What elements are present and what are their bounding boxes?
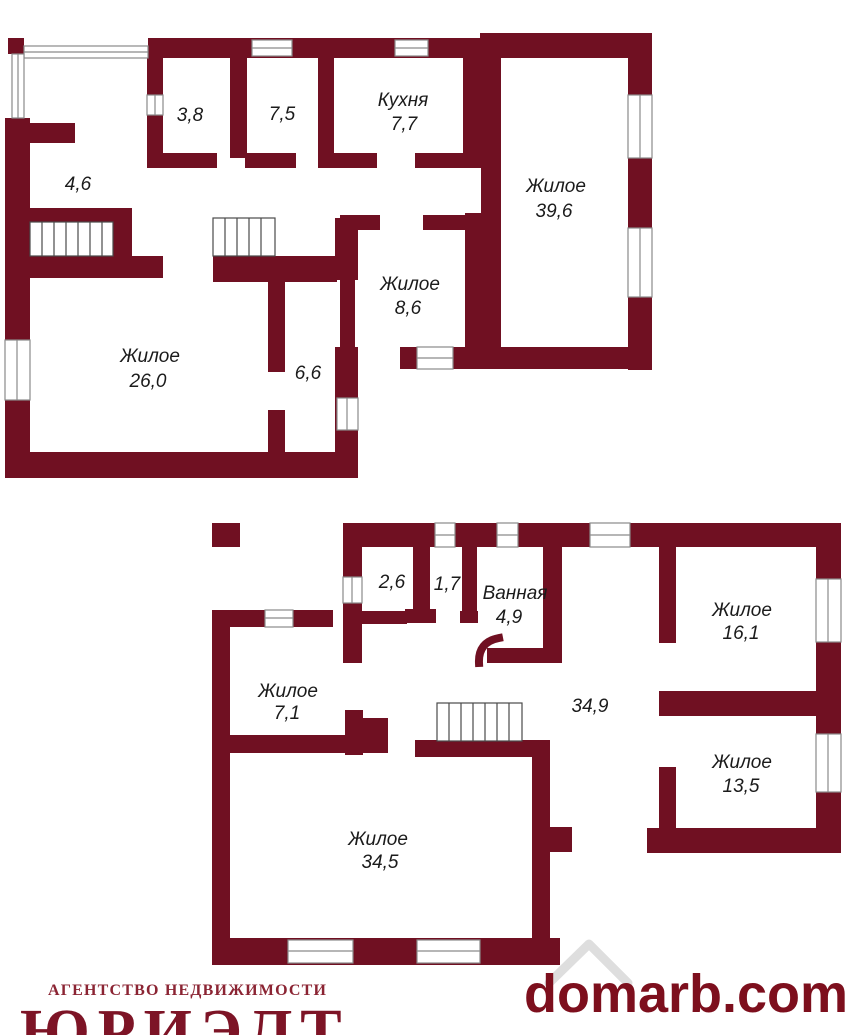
room-area: 13,5 <box>723 776 760 797</box>
room-area: 7,1 <box>274 703 300 724</box>
wall <box>659 545 676 643</box>
stairs <box>437 703 522 741</box>
window <box>628 95 652 158</box>
window <box>265 610 293 627</box>
window <box>147 95 163 115</box>
wall <box>463 58 481 158</box>
window <box>252 40 292 56</box>
room-area: 6,6 <box>295 363 322 384</box>
room-area: 2,6 <box>378 572 406 593</box>
room-area: 7,7 <box>391 114 419 135</box>
room-name: Жилое <box>379 274 440 295</box>
room-name: Кухня <box>378 90 429 111</box>
window <box>497 523 518 547</box>
wall <box>27 208 115 222</box>
wall <box>343 613 362 663</box>
room-area: 39,6 <box>536 201 573 222</box>
wall <box>550 827 572 852</box>
wall <box>8 38 24 54</box>
balcony-window <box>24 46 148 58</box>
wall <box>487 648 543 663</box>
room-area: 26,0 <box>129 371 167 392</box>
room-area: 16,1 <box>723 623 760 644</box>
window <box>417 940 480 963</box>
wall <box>413 547 430 609</box>
wall <box>361 611 407 624</box>
room-area: 4,6 <box>65 174 92 195</box>
room-area: 7,5 <box>269 104 296 125</box>
wall <box>27 256 163 278</box>
balcony-window <box>12 54 24 118</box>
room-name: Жилое <box>711 752 772 773</box>
agency-caption: АГЕНТСТВО НЕДВИЖИМОСТИ <box>48 982 327 999</box>
room-area: 3,8 <box>177 105 204 126</box>
window <box>628 228 652 297</box>
wall <box>465 213 483 347</box>
wall <box>30 123 75 143</box>
window <box>590 523 630 547</box>
room-name: Жилое <box>257 681 318 702</box>
window <box>288 940 353 963</box>
floorplan-image: 3,8 7,5 Кухня 7,7 Жилое 39,6 4,6 Жилое 8… <box>0 0 862 1035</box>
room-area: 8,6 <box>395 298 422 319</box>
window <box>816 734 841 792</box>
floor-plan-upper: 3,8 7,5 Кухня 7,7 Жилое 39,6 4,6 Жилое 8… <box>5 33 652 478</box>
wall <box>480 33 652 58</box>
wall <box>453 347 652 369</box>
wall <box>460 611 478 623</box>
wall <box>400 347 417 369</box>
room-name: Жилое <box>347 829 408 850</box>
wall <box>268 282 285 372</box>
wall <box>415 740 550 757</box>
room-name: Жилое <box>525 176 586 197</box>
wall <box>405 609 436 623</box>
wall <box>5 118 30 478</box>
stairs <box>213 218 275 256</box>
wall <box>335 218 358 280</box>
floor-plan-lower: 2,6 1,7 Ванная 4,9 Жилое 16,1 34,9 Жилое… <box>212 523 841 965</box>
room-area: 1,7 <box>434 574 462 595</box>
watermark-text: domarb.com <box>524 964 848 1024</box>
room-area: 4,9 <box>496 607 523 628</box>
wall <box>659 767 676 828</box>
window <box>417 347 453 369</box>
room-name: Жилое <box>119 346 180 367</box>
wall <box>212 523 240 547</box>
wall <box>5 452 358 478</box>
room-area: 34,9 <box>572 696 609 717</box>
window <box>343 577 362 603</box>
wall <box>423 215 465 230</box>
wall <box>318 153 377 168</box>
stairs <box>30 222 113 256</box>
wall <box>230 58 247 158</box>
room-area: 34,5 <box>362 852 399 873</box>
window <box>5 340 30 400</box>
wall <box>212 610 230 965</box>
wall <box>212 938 560 965</box>
floorplan-canvas: 3,8 7,5 Кухня 7,7 Жилое 39,6 4,6 Жилое 8… <box>0 0 862 1035</box>
wall <box>532 740 550 965</box>
wall <box>543 547 562 663</box>
wall <box>268 410 285 452</box>
window <box>816 579 841 642</box>
wall <box>245 153 296 168</box>
wall <box>318 58 334 158</box>
wall <box>462 547 477 611</box>
room-name: Ванная <box>483 583 548 604</box>
window <box>337 398 358 430</box>
wall <box>230 735 357 753</box>
agency-logo: ЮРИЭЛТ <box>20 998 350 1035</box>
wall <box>816 523 841 853</box>
wall <box>647 828 840 853</box>
wall <box>415 153 481 168</box>
window <box>395 40 428 56</box>
window <box>435 523 455 547</box>
wall <box>659 691 817 716</box>
wall <box>148 38 480 58</box>
wall <box>363 718 388 753</box>
room-name: Жилое <box>711 600 772 621</box>
wall <box>628 33 652 370</box>
wall <box>213 256 337 282</box>
wall <box>147 153 217 168</box>
wall <box>481 58 501 347</box>
